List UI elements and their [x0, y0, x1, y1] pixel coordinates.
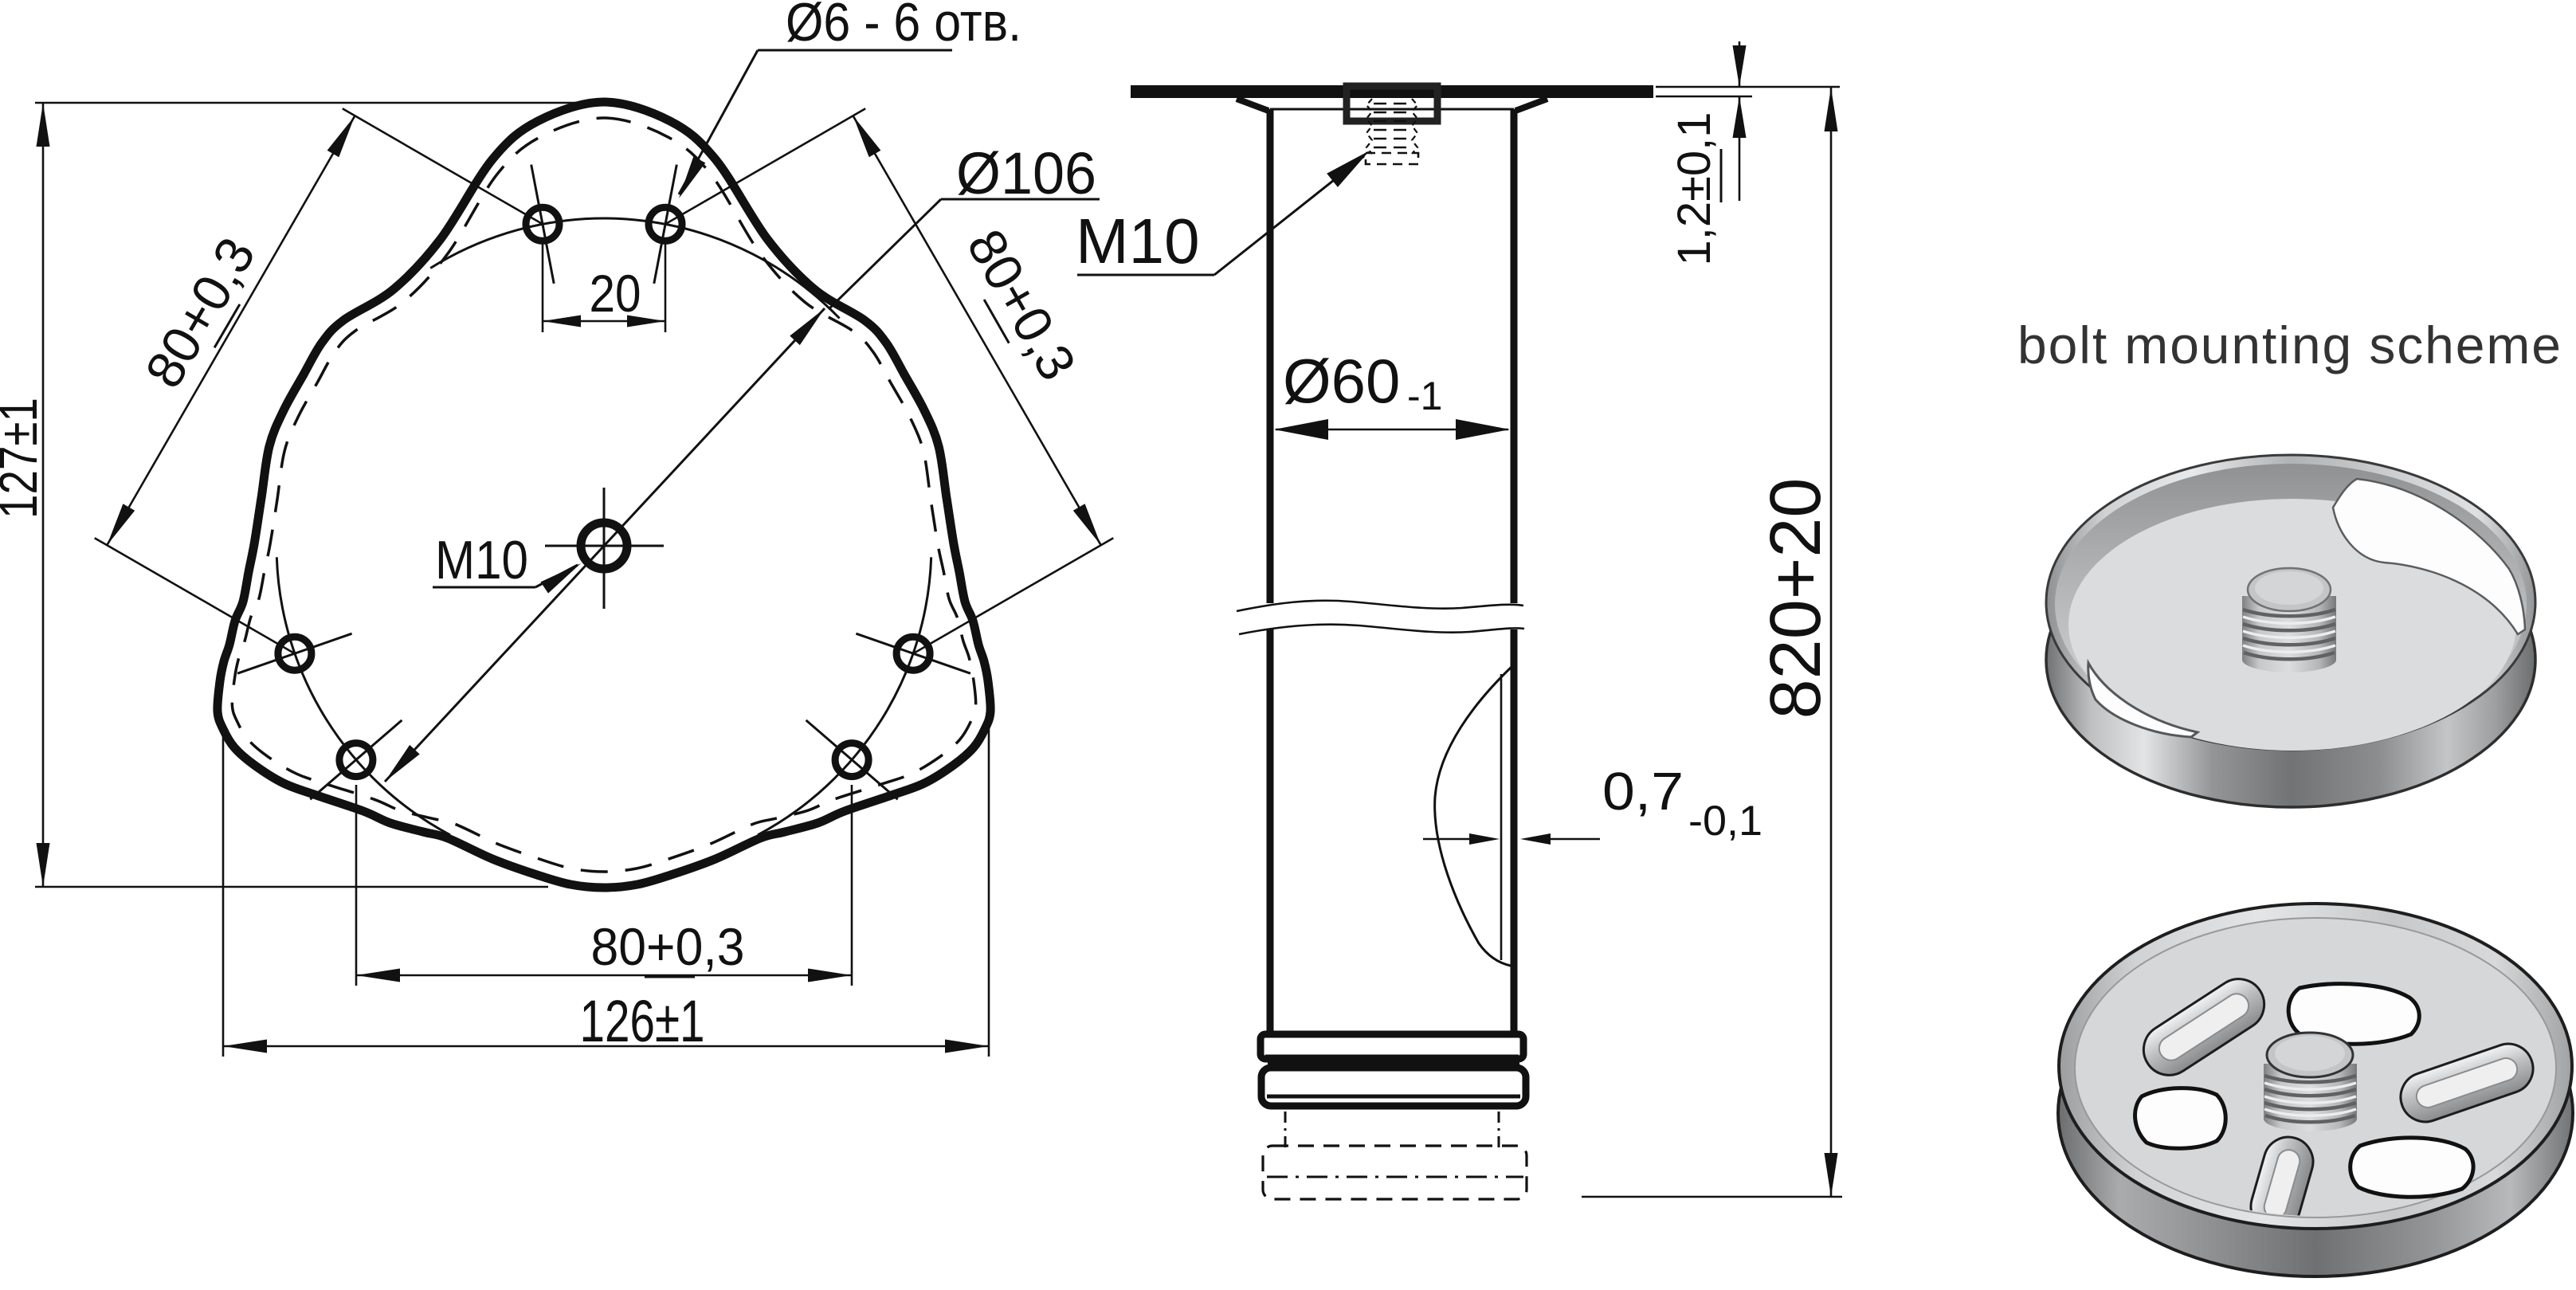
svg-text:Ø6 - 6 отв.: Ø6 - 6 отв.: [786, 0, 1021, 53]
svg-text:20: 20: [590, 264, 641, 323]
svg-text:Ø60: Ø60: [1283, 346, 1400, 416]
svg-text:M10: M10: [1076, 206, 1200, 276]
svg-text:-1: -1: [1407, 374, 1442, 418]
svg-text:-0,1: -0,1: [1688, 798, 1762, 845]
svg-text:Ø106: Ø106: [956, 140, 1096, 206]
svg-text:127±1: 127±1: [0, 398, 49, 519]
svg-text:M10: M10: [435, 530, 528, 590]
svg-text:80+0,3: 80+0,3: [591, 917, 745, 976]
svg-text:126±1: 126±1: [580, 988, 705, 1054]
svg-text:1,2±0,1: 1,2±0,1: [1668, 112, 1720, 265]
svg-text:0,7: 0,7: [1602, 762, 1684, 821]
svg-text:820+20: 820+20: [1756, 478, 1836, 719]
svg-text:bolt mounting scheme: bolt mounting scheme: [2017, 316, 2561, 374]
